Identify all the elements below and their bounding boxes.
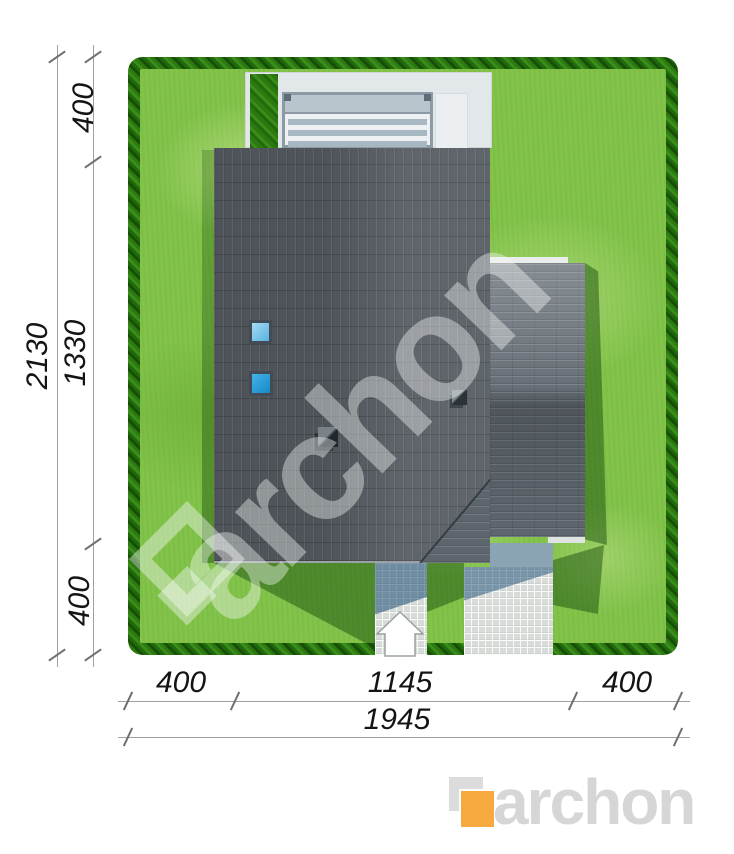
dim-label-left-margin: 400 [156, 666, 206, 700]
pergola-post [284, 94, 291, 101]
skylight-upper [249, 320, 272, 344]
wing-gutter [548, 537, 585, 543]
pergola-post [424, 94, 431, 101]
wing-roof [490, 263, 585, 537]
pergola [282, 92, 433, 148]
terrace-hedge-strip [250, 74, 278, 148]
chimney [318, 427, 338, 447]
dim-label-house-depth: 1330 [59, 320, 93, 387]
roof-left-shadow [202, 150, 214, 563]
pergola-beam [285, 95, 430, 114]
entrance-arrow-icon [374, 610, 426, 658]
terrace-panel [435, 93, 468, 150]
dim-label-right-margin: 400 [602, 666, 652, 700]
dim-label-bottom-margin: 400 [63, 576, 97, 626]
dim-line-bottom-outer [118, 737, 690, 738]
pergola-slat [288, 119, 427, 125]
brand-logo-text: archon [493, 770, 694, 834]
dim-label-house-width: 1145 [368, 666, 433, 700]
skylight-lower [249, 371, 273, 396]
wing-wall-shaded [490, 543, 553, 568]
dim-line-bottom-inner [118, 701, 690, 702]
dim-label-top-margin: 400 [67, 83, 101, 133]
pergola-slat [288, 141, 427, 147]
logo-accent-square-icon [459, 789, 494, 827]
dim-line-left-outer [57, 45, 58, 667]
dim-label-total-width: 1945 [364, 703, 431, 737]
roof-vent [452, 390, 467, 405]
dim-line-left-inner [93, 45, 94, 667]
main-roof [214, 148, 490, 563]
dim-label-total-depth: 2130 [21, 323, 55, 390]
pergola-slat [288, 130, 427, 136]
